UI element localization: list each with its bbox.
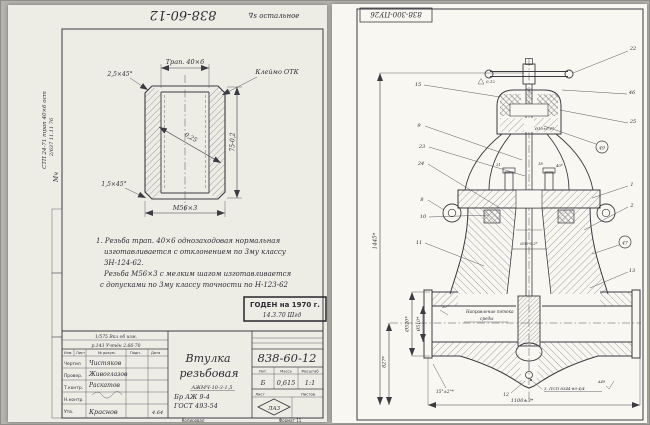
margin-note-2: 2/637 11.11 76 — [49, 117, 55, 157]
callout-11: 11 — [416, 240, 422, 246]
margin-notes: СТП 24-71 трап 40×6 ост 2/637 11.11 76 М… — [42, 91, 60, 183]
change-record-1: 1/575 Вкл об изм. — [95, 333, 138, 340]
title-block: 1/575 Вкл об изм. р.143 Учтён 2.66-70 Из… — [62, 331, 323, 422]
flow-note-line-2: среды — [480, 316, 494, 321]
right-drawing-sheet: 838-300-ПУ26 — [332, 4, 647, 423]
tb-header-scale: Масштаб — [301, 370, 319, 374]
format-label: Формат 11 — [279, 418, 302, 422]
tb-row-prover: Провер. — [64, 373, 82, 379]
tb-header-list: Лист — [76, 351, 85, 355]
tb-row-chertil: Чертил — [64, 361, 81, 367]
tb-sheet-label: Лист — [255, 392, 265, 397]
callout-1: 1 — [630, 182, 633, 188]
dim-thread-bottom: М56×3 — [172, 204, 198, 212]
tb-header-dokum: № докум. — [98, 351, 116, 355]
stud-dim-21: 21 — [495, 162, 501, 167]
note-line-1: 1. Резьба трап. 40×6 однозаходовая норма… — [96, 237, 280, 245]
surface-finish-note: ∇s остальное — [249, 12, 300, 20]
otk-stamp-note: Клеймо ОТК — [254, 68, 299, 76]
bushing-section-view — [145, 75, 225, 211]
material-spec-1: АЖМЧ-10-3-1,5 — [191, 385, 233, 391]
callout-24: 24 — [417, 161, 424, 167]
tolerance-mark: 0,12 — [486, 79, 495, 84]
technical-notes: 1. Резьба трап. 40×6 однозаходовая норма… — [96, 237, 291, 289]
dim-seat-angle: 30° — [442, 304, 449, 309]
callout-23: 23 — [418, 144, 425, 150]
approval-stamp: ГОДЕН на 1970 г. 14.3.70 Шгд — [244, 297, 326, 321]
litera-value: Б — [260, 379, 266, 387]
dim-chamfer-bottom: 1,5×45° — [101, 181, 126, 188]
weld-note-text: 3, ПСП 8344-80-4/4 — [544, 386, 585, 391]
signature-scribble — [92, 391, 122, 398]
tb-header-mass: Масса — [280, 370, 291, 374]
dim-axis-height: 827* — [382, 355, 388, 368]
tb-row-utv: Утв. — [64, 409, 73, 415]
left-drawing-sheet: 838-60-12 ∇s остальное СТП 24-71 трап 40… — [8, 5, 327, 422]
callout-46: 46 — [628, 90, 636, 96]
scanned-drawings-photo: 838-60-12 ∇s остальное СТП 24-71 трап 40… — [0, 0, 650, 425]
tb-header-data: Дата — [151, 351, 160, 355]
note-line-2: изготавливается с отклонением по 3му кла… — [104, 248, 287, 256]
flow-note-line-1: Направление потока — [465, 309, 514, 314]
callout-2: 2 — [629, 203, 633, 209]
stud-dim-40: 40* — [555, 163, 563, 168]
stamp-signature: 14.3.70 Шгд — [263, 312, 302, 319]
stem-dia-dim: Ø30-0,2* — [519, 241, 537, 246]
tb-header-lit: Лит. — [259, 370, 267, 374]
callout-15: 15 — [415, 82, 421, 88]
callout-8: 8 — [420, 197, 423, 203]
bushing-drawing-svg: 838-60-12 ∇s остальное СТП 24-71 трап 40… — [8, 5, 327, 422]
tb-header-izm: Изм. — [64, 351, 72, 355]
stud-dim-18: 18 — [538, 161, 543, 166]
dim-end-angle: 15°±2°* — [436, 389, 455, 394]
weld-mark: А49 — [597, 380, 606, 384]
part-title-line-2: резьбовая — [179, 367, 238, 380]
part-title-line-1: Втулка — [184, 352, 230, 365]
flow-direction-note: Направление потока среды — [464, 309, 514, 322]
valve-assembly-svg: 838-300-ПУ26 — [332, 4, 647, 423]
callout-9: 9 — [417, 123, 421, 129]
dim-thread-top: Трап. 40×6 — [166, 58, 205, 66]
dim-chamfer-top: 2,5×45° — [106, 71, 132, 78]
callout-25: 25 — [629, 119, 636, 125]
dim-outer-dia: Ø520* — [404, 316, 411, 333]
stamp-text: ГОДЕН на 1970 г. — [250, 301, 320, 309]
tb-sheets-label: Листов — [301, 392, 316, 397]
dim-inner-dia: Ø510* — [415, 316, 422, 332]
flipped-drawing-number: 838-60-12 — [150, 7, 217, 22]
change-record-2: р.143 Учтён 2.66-70 — [92, 342, 141, 349]
drawing-number: 838-60-12 — [258, 351, 317, 365]
callout-49: 49 — [598, 146, 605, 152]
signature-date: 4.64 — [151, 410, 163, 416]
dim-height: 75-0,2 — [230, 132, 237, 151]
dim-overall-length: 1100±3* — [511, 398, 534, 404]
callout-47: 47 — [621, 241, 628, 247]
margin-note-1: СТП 24-71 трап 40×6 ост — [42, 91, 48, 169]
note-line-4: Резьба М56×3 с мелким шагом изготавливае… — [103, 270, 291, 278]
callout-10: 10 — [420, 214, 427, 220]
callout-22: 22 — [629, 46, 636, 52]
mass-value: 0,615 — [277, 379, 296, 387]
callout-13: 13 — [629, 268, 635, 274]
signature-name-2: Живоглазов — [88, 371, 128, 378]
signature-name-3: Раскатов — [88, 382, 120, 389]
flipped-drawing-number: 838-300-ПУ26 — [370, 10, 422, 18]
tb-row-nkontr: Н.контр. — [64, 397, 84, 403]
material-spec-2: Бр АЖ 9-4 — [173, 393, 210, 401]
margin-note-3: Мч — [53, 172, 60, 183]
diamond-stamp-text: ЛА3 — [267, 406, 281, 412]
signature-name-1: Чистяков — [89, 360, 122, 367]
scale-value: 1:1 — [305, 379, 315, 387]
callout-12: 12 — [503, 392, 509, 398]
note-line-3: ЗН-124-62. — [104, 259, 144, 267]
tb-row-tkontr: Т.контр. — [63, 385, 83, 391]
note-line-5: с допусками по 3му классу точности по Н-… — [100, 281, 289, 289]
signature-name-4: Краснов — [88, 408, 118, 416]
material-spec-3: ГОСТ 493-54 — [173, 402, 218, 410]
tb-header-podp: Подп. — [130, 351, 141, 355]
dim-total-height: 1445* — [373, 232, 379, 249]
copied-label: Копировал — [182, 418, 205, 422]
